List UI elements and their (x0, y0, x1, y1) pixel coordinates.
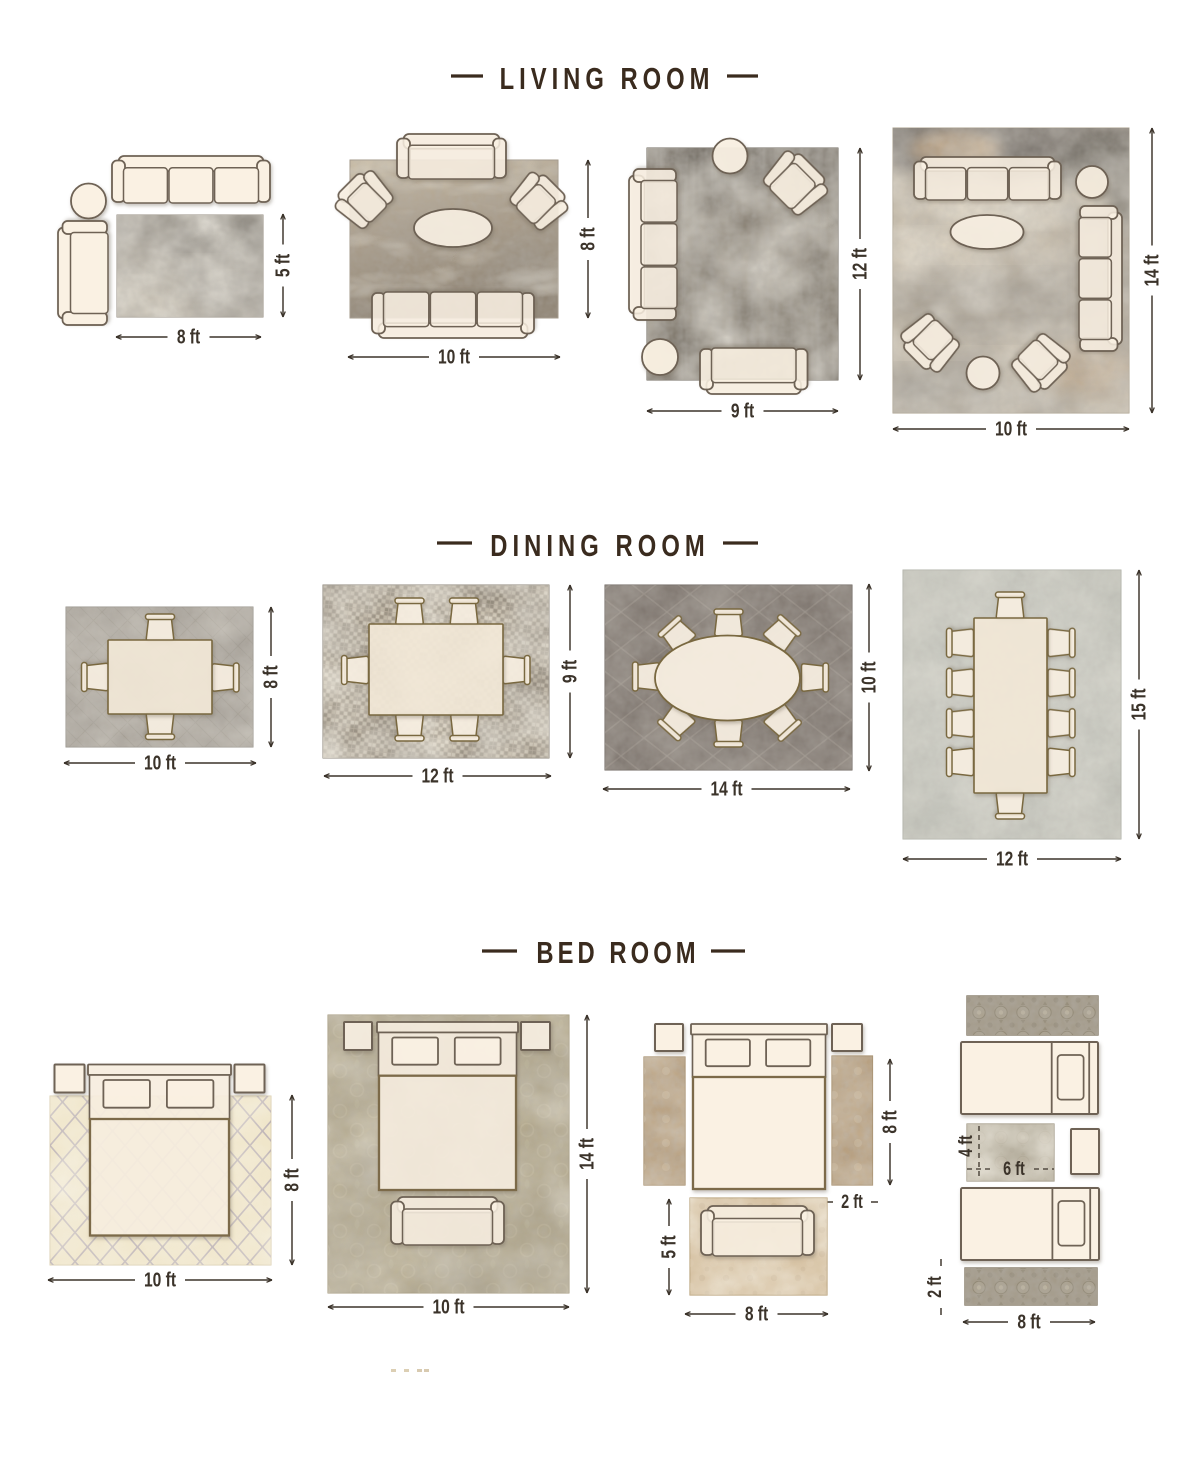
svg-text:14 ft: 14 ft (710, 777, 742, 800)
svg-text:2 ft: 2 ft (924, 1276, 945, 1298)
svg-text:10 ft: 10 ft (432, 1295, 464, 1318)
svg-text:4 ft: 4 ft (955, 1135, 976, 1157)
svg-text:6 ft: 6 ft (1003, 1158, 1025, 1179)
svg-text:2 ft: 2 ft (841, 1191, 863, 1212)
svg-text:12 ft: 12 ft (996, 847, 1028, 870)
svg-text:8 ft: 8 ft (745, 1302, 768, 1325)
svg-text:BED ROOM: BED ROOM (536, 935, 699, 970)
svg-text:10 ft: 10 ft (438, 345, 470, 368)
svg-text:8 ft: 8 ft (1017, 1310, 1040, 1333)
svg-text:LIVING ROOM: LIVING ROOM (500, 61, 715, 96)
svg-text:9 ft: 9 ft (558, 660, 581, 683)
svg-text:8 ft: 8 ft (878, 1110, 901, 1133)
svg-text:DINING ROOM: DINING ROOM (490, 528, 710, 563)
svg-text:10 ft: 10 ft (144, 1268, 176, 1291)
svg-text:5 ft: 5 ft (271, 254, 294, 277)
svg-text:5 ft: 5 ft (657, 1235, 680, 1258)
svg-text:9 ft: 9 ft (731, 399, 754, 422)
svg-text:8 ft: 8 ft (576, 227, 599, 250)
svg-text:15 ft: 15 ft (1127, 688, 1150, 720)
svg-text:14 ft: 14 ft (1140, 254, 1163, 286)
svg-text:12 ft: 12 ft (421, 764, 453, 787)
svg-text:8 ft: 8 ft (259, 665, 282, 688)
svg-text:8 ft: 8 ft (177, 325, 200, 348)
svg-text:10 ft: 10 ft (857, 661, 880, 693)
svg-text:10 ft: 10 ft (144, 751, 176, 774)
svg-text:12 ft: 12 ft (848, 248, 871, 280)
svg-text:14 ft: 14 ft (575, 1138, 598, 1170)
svg-text:10 ft: 10 ft (995, 417, 1027, 440)
svg-text:8 ft: 8 ft (280, 1168, 303, 1191)
